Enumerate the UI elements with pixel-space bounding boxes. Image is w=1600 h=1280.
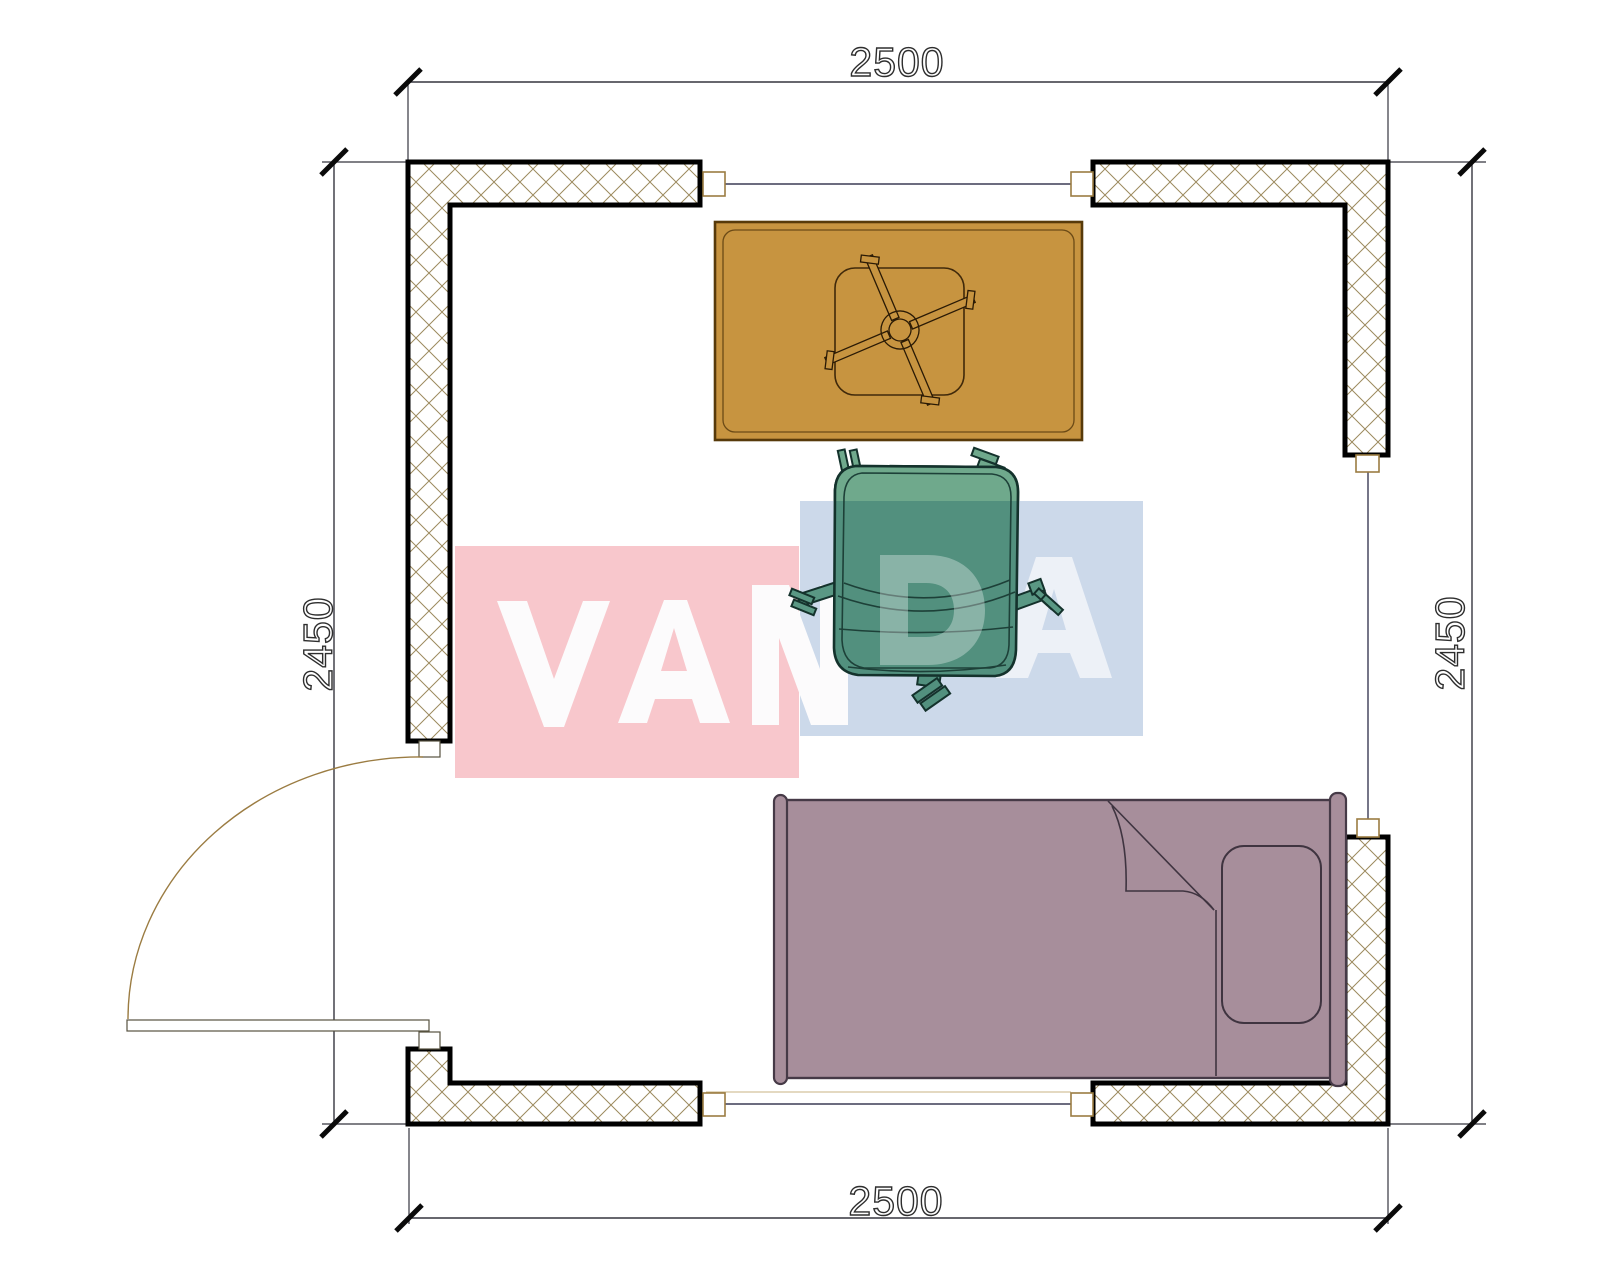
svg-text:2450: 2450 [1427, 595, 1473, 690]
svg-text:2500: 2500 [849, 39, 944, 85]
svg-text:2450: 2450 [295, 596, 341, 691]
svg-text:2500: 2500 [848, 1178, 943, 1224]
